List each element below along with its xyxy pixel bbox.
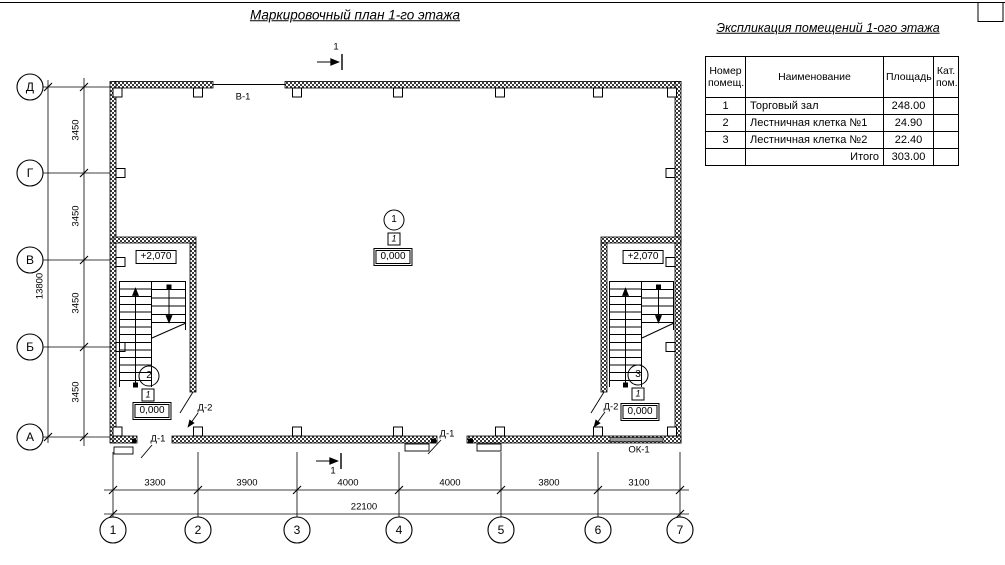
dim-left-2: 3450: [71, 205, 81, 226]
section-mark-label: 1: [330, 466, 335, 476]
stairs: [134, 285, 675, 387]
dim-left-total: 13800: [35, 273, 45, 299]
room-number: 2: [706, 115, 746, 132]
dim-bottom-1: 3300: [144, 478, 165, 488]
window-symbols: [213, 85, 663, 442]
section-marks: [316, 54, 342, 469]
room-tag-1: 1: [391, 215, 397, 225]
col-header-category: Кат. пом.: [934, 57, 959, 98]
room-area: 24.90: [884, 115, 934, 132]
dim-left-1: 3450: [71, 119, 81, 140]
room-number: 3: [706, 132, 746, 149]
col-header-number: Номер помещ.: [706, 57, 746, 98]
axis-label-2: 2: [195, 524, 202, 536]
dim-bottom-5: 3800: [538, 478, 559, 488]
door-threshold: [477, 444, 501, 451]
section-mark-label: 1: [333, 42, 338, 52]
dim-left-3: 3450: [71, 292, 81, 313]
dim-bottom-4: 4000: [439, 478, 460, 488]
room-area: 22.40: [884, 132, 934, 149]
window-label-ok1: ОК-1: [628, 445, 649, 455]
door-label-d1: Д-1: [440, 429, 455, 439]
axis-label-3: 3: [294, 524, 301, 536]
room-number: 1: [706, 98, 746, 115]
room-tag-3: 3: [635, 370, 641, 380]
door-symbols: [114, 392, 605, 458]
room-category: [934, 98, 959, 115]
axis-label-b: Б: [26, 341, 34, 353]
category-mark: 1: [632, 388, 645, 401]
col-header-area: Площадь: [884, 57, 934, 98]
door-leader: [594, 412, 605, 427]
level-mark-zero: 0,000: [375, 250, 410, 264]
room-category: [934, 132, 959, 149]
table-header-row: Номер помещ. Наименование Площадь Кат. п…: [706, 57, 959, 98]
axis-label-1: 1: [110, 524, 117, 536]
table-row: 1 Торговый зал 248.00: [706, 98, 959, 115]
room-area: 248.00: [884, 98, 934, 115]
window-ok1: [610, 438, 663, 442]
axis-label-7: 7: [677, 524, 684, 536]
door-leader: [188, 413, 198, 427]
axis-label-v: В: [26, 254, 34, 266]
door-label-d1: Д-1: [151, 434, 166, 444]
window-label-v1: В-1: [236, 92, 251, 102]
level-mark-zero: 0,000: [134, 404, 169, 418]
sheet-frame: [0, 3, 1005, 22]
explication-table: Номер помещ. Наименование Площадь Кат. п…: [705, 56, 959, 166]
revision-box: [978, 3, 1003, 22]
room-name: Лестничная клетка №2: [746, 132, 884, 149]
door-leaf: [591, 392, 604, 413]
empty-cell: [934, 149, 959, 166]
axis-label-d: Д: [26, 81, 34, 93]
explication-title: Экспликация помещений 1-ого этажа: [716, 22, 939, 35]
total-value: 303.00: [884, 149, 934, 166]
category-mark: 1: [388, 233, 401, 246]
table-row: 2 Лестничная клетка №1 24.90: [706, 115, 959, 132]
door-threshold: [114, 447, 133, 454]
axis-label-a: А: [26, 431, 34, 443]
drawing-sheet: Маркировочный план 1-го этажа Экспликаци…: [0, 0, 1005, 565]
door-label-d2: Д-2: [604, 402, 619, 412]
dim-bottom-3: 4000: [337, 478, 358, 488]
room-tag-2: 2: [146, 371, 152, 381]
room-category: [934, 115, 959, 132]
level-mark-upper: +2,070: [623, 250, 664, 264]
dim-bottom-total: 22100: [351, 502, 377, 512]
level-mark-zero: 0,000: [622, 405, 657, 419]
empty-cell: [706, 149, 746, 166]
room-name: Торговый зал: [746, 98, 884, 115]
axis-label-4: 4: [396, 524, 403, 536]
dim-bottom-2: 3900: [236, 478, 257, 488]
door-leaf: [180, 392, 193, 413]
table-row: 3 Лестничная клетка №2 22.40: [706, 132, 959, 149]
door-threshold: [405, 444, 429, 451]
axis-label-5: 5: [498, 524, 505, 536]
total-label: Итого: [746, 149, 884, 166]
table-total-row: Итого 303.00: [706, 149, 959, 166]
col-header-name: Наименование: [746, 57, 884, 98]
plan-title: Маркировочный план 1-го этажа: [250, 8, 460, 22]
stair-flight: [642, 281, 674, 330]
dim-bottom-6: 3100: [628, 478, 649, 488]
level-mark-upper: +2,070: [136, 250, 177, 264]
stair-flight: [152, 281, 186, 330]
axis-label-6: 6: [595, 524, 602, 536]
door-leader: [141, 445, 152, 458]
dim-left-4: 3450: [71, 381, 81, 402]
room-name: Лестничная клетка №1: [746, 115, 884, 132]
axis-label-g: Г: [27, 167, 34, 179]
door-label-d2: Д-2: [198, 403, 213, 413]
category-mark: 1: [142, 389, 155, 402]
